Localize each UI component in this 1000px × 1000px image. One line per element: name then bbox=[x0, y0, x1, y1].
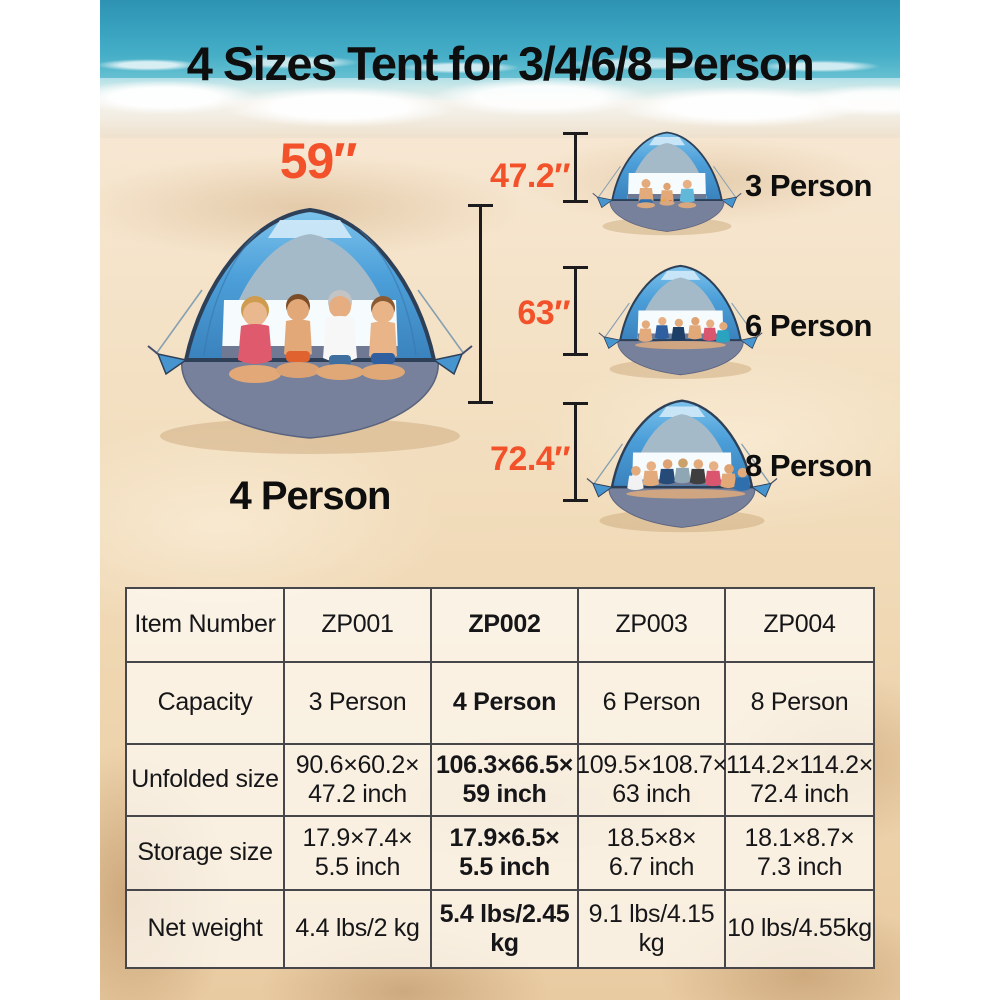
spec-cell: 114.2×114.2×72.4 inch bbox=[726, 745, 873, 817]
product-infographic: 4 Sizes Tent for 3/4/6/8 Person bbox=[0, 0, 1000, 1000]
spec-cell: ZP003 bbox=[579, 589, 726, 663]
variant3-capacity-label: 8 Person bbox=[726, 448, 891, 484]
spec-cell-highlight: 5.4 lbs/2.45 kg bbox=[432, 891, 579, 967]
hero-width-label: 59″ bbox=[253, 132, 383, 190]
spec-row-label: Capacity bbox=[127, 663, 285, 745]
variant1-height-arrow-icon bbox=[574, 132, 577, 203]
spec-cell-highlight: ZP002 bbox=[432, 589, 579, 663]
variant1-capacity-label: 3 Person bbox=[726, 168, 891, 204]
spec-table: Item Number ZP001 ZP002 ZP003 ZP004 Capa… bbox=[125, 587, 875, 969]
spec-cell: 6 Person bbox=[579, 663, 726, 745]
hero-capacity-label: 4 Person bbox=[200, 474, 420, 519]
spec-cell-highlight: 4 Person bbox=[432, 663, 579, 745]
spec-cell: 10 lbs/4.55kg bbox=[726, 891, 873, 967]
spec-cell: ZP004 bbox=[726, 589, 873, 663]
spec-row-label: Net weight bbox=[127, 891, 285, 967]
spec-cell: 9.1 lbs/4.15 kg bbox=[579, 891, 726, 967]
variant3-height-arrow-icon bbox=[574, 402, 577, 502]
spec-cell: 8 Person bbox=[726, 663, 873, 745]
spec-cell: 18.1×8.7×7.3 inch bbox=[726, 817, 873, 891]
page-title: 4 Sizes Tent for 3/4/6/8 Person bbox=[100, 36, 900, 91]
spec-cell: 17.9×7.4×5.5 inch bbox=[285, 817, 432, 891]
variant2-height-arrow-icon bbox=[574, 266, 577, 356]
variant3-height-label: 72.4″ bbox=[420, 440, 570, 479]
hero-tent-illustration bbox=[140, 198, 480, 470]
spec-cell-highlight: 106.3×66.5×59 inch bbox=[432, 745, 579, 817]
spec-cell: 109.5×108.7×63 inch bbox=[579, 745, 726, 817]
variant2-capacity-label: 6 Person bbox=[726, 308, 891, 344]
people-silhouettes bbox=[637, 179, 696, 208]
variant1-height-label: 47.2″ bbox=[420, 157, 570, 196]
spec-cell: 90.6×60.2×47.2 inch bbox=[285, 745, 432, 817]
spec-cell: 4.4 lbs/2 kg bbox=[285, 891, 432, 967]
spec-cell: 3 Person bbox=[285, 663, 432, 745]
beach-photo: 4 Sizes Tent for 3/4/6/8 Person bbox=[100, 0, 900, 1000]
variant2-height-label: 63″ bbox=[420, 294, 570, 333]
spec-cell: 18.5×8×6.7 inch bbox=[579, 817, 726, 891]
spec-cell-highlight: 17.9×6.5×5.5 inch bbox=[432, 817, 579, 891]
spec-row-label: Item Number bbox=[127, 589, 285, 663]
tent-3-person-illustration bbox=[592, 126, 742, 241]
spec-cell: ZP001 bbox=[285, 589, 432, 663]
spec-row-label: Storage size bbox=[127, 817, 285, 891]
spec-row-label: Unfolded size bbox=[127, 745, 285, 817]
